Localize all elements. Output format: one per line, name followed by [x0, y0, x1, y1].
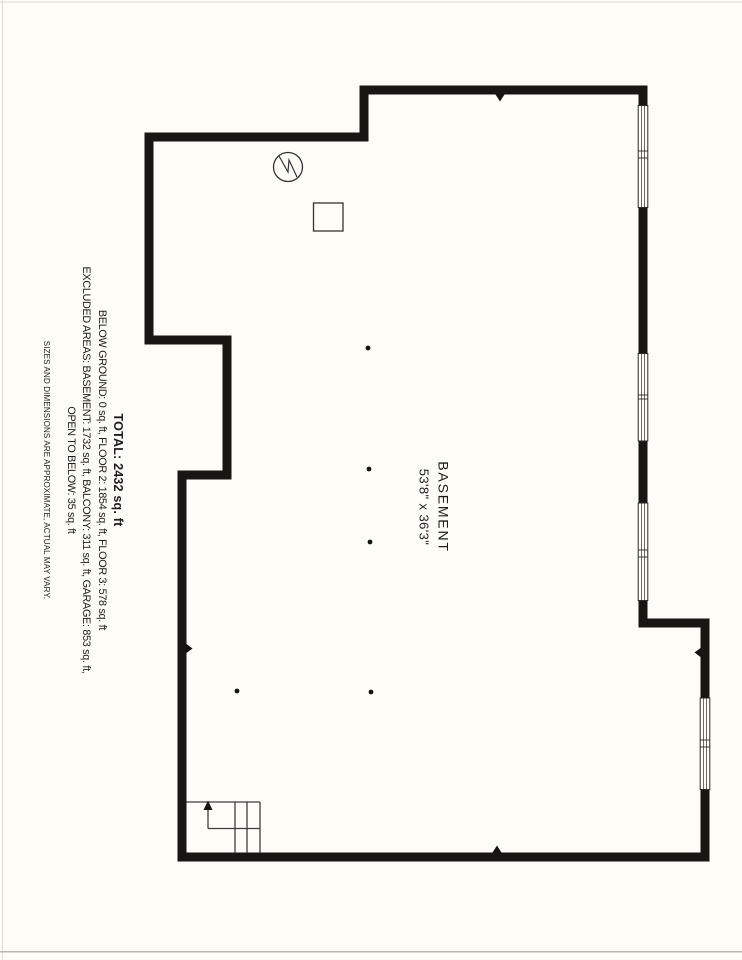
paper-edge-bottom	[0, 951, 742, 953]
floors-area-label: BELOW GROUND: 0 sq. ft, FLOOR 2: 1854 sq…	[93, 267, 109, 674]
window-lower-right	[700, 698, 710, 790]
column-dot	[368, 540, 373, 545]
disclaimer-label: SIZES AND DIMENSIONS ARE APPROXIMATE, AC…	[42, 267, 51, 674]
tick-bottom	[493, 846, 502, 853]
equipment-box-symbol-icon	[314, 203, 344, 231]
stairs	[187, 802, 261, 853]
column-dot	[367, 467, 372, 472]
excluded-area-label: EXCLUDED AREAS: BASEMENT: 1732 sq. ft, B…	[78, 267, 94, 674]
room-label: BASEMENT 53'8" x 36'3"	[417, 461, 452, 552]
light-fixture-zigzag-icon	[279, 156, 297, 177]
tick-right	[695, 648, 701, 657]
window-upper-right-1	[638, 106, 648, 208]
paper-edge-left	[2, 0, 3, 960]
room-dimensions-label: 53'8" x 36'3"	[417, 461, 432, 552]
floor-plan-page: TOTAL: 2432 sq. ft BELOW GROUND: 0 sq. f…	[0, 0, 742, 960]
window-upper-right-3	[638, 503, 648, 601]
support-columns	[235, 346, 374, 695]
column-dot	[369, 690, 374, 695]
window-upper-right-2	[638, 354, 648, 442]
area-summary: TOTAL: 2432 sq. ft BELOW GROUND: 0 sq. f…	[42, 267, 126, 674]
column-dot	[235, 689, 240, 694]
column-dot	[366, 346, 371, 351]
tick-top	[496, 95, 505, 102]
total-area-label: TOTAL: 2432 sq. ft	[109, 267, 126, 674]
room-name-label: BASEMENT	[435, 461, 452, 552]
excluded-area-label-2: OPEN TO BELOW: 35 sq. ft	[62, 267, 78, 674]
tick-left	[187, 644, 193, 653]
paper-edge-top	[0, 2, 742, 3]
